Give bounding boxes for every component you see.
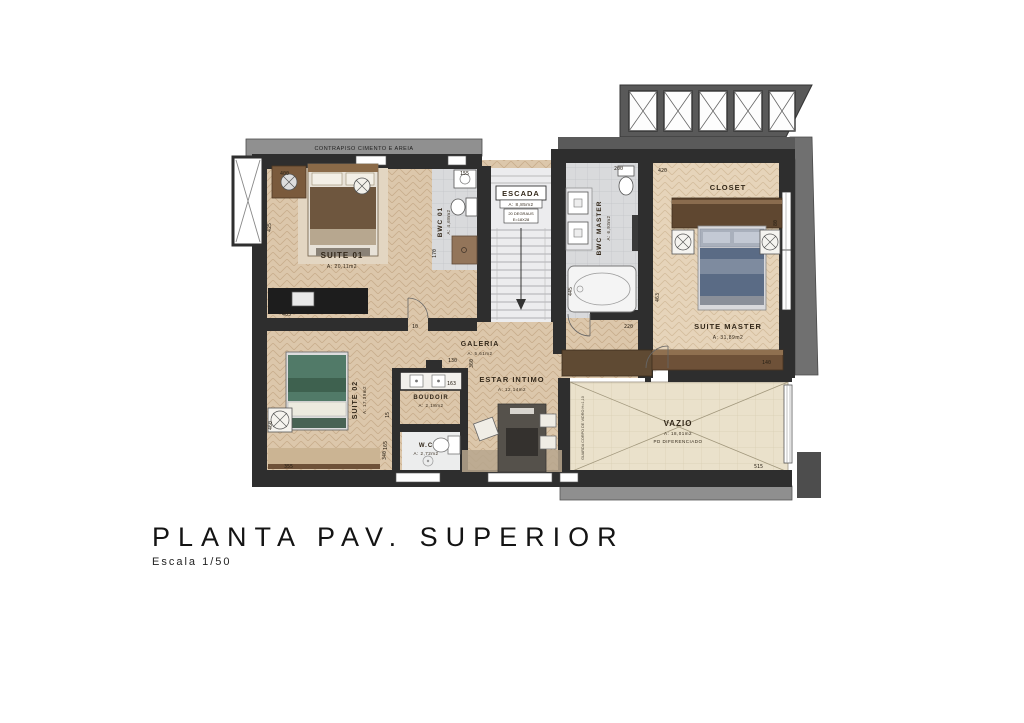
wc-toilet-tank: [448, 436, 460, 454]
stair-note-2: E=18X28: [513, 217, 530, 222]
room-label-boudoir: BOUDOIR: [413, 395, 448, 401]
estar-chair-1: [540, 414, 556, 427]
title-block: PLANTA PAV. SUPERIOR Escala 1/50: [152, 522, 625, 568]
dim-15: 15: [385, 412, 391, 418]
wc-toilet: [433, 438, 449, 452]
room-area-galeria: A: 5,61m2: [467, 351, 492, 356]
dim-400: 400: [280, 171, 289, 177]
suite01-bed: [308, 164, 378, 256]
room-area-boudoir: A: 2,18m2: [418, 403, 443, 408]
floorplan-page: SEVEN CONTRAPISO CIMENTO E AREIA: [0, 0, 1024, 723]
room-area-escada: A: 8,85m2: [508, 202, 533, 207]
suite02-bed: [286, 352, 348, 430]
bwc01-toilet: [451, 199, 465, 215]
room-area-vazio: A: 18,01m2: [664, 431, 692, 436]
guardrail-note: GUARDA CORPO DE VIDRO H=1,10: [581, 396, 585, 460]
bwc01-toilet-tank: [466, 198, 477, 216]
dim-220: 220: [624, 324, 633, 330]
dim-355: 355: [284, 464, 293, 470]
room-area-bwc01: A: 4,68m2: [446, 209, 451, 234]
plan-title: PLANTA PAV. SUPERIOR: [152, 522, 625, 553]
dim-155: 155: [460, 171, 469, 177]
bwc01-shower: [452, 236, 477, 264]
room-label-suite02: SUITE 02: [352, 381, 359, 419]
plan-scale: Escala 1/50: [152, 556, 625, 568]
bwc-master-shelf: [632, 215, 638, 251]
room-area-wc: A: 2,72m2: [413, 451, 438, 456]
room-label-suite-master: SUITE MASTER: [694, 322, 762, 331]
dim-515: 515: [754, 464, 763, 470]
pergola-skylight: [620, 85, 812, 137]
stair-note-1: 20 DEGRAUS: [508, 211, 534, 216]
dim-140: 140: [762, 360, 771, 366]
glass-guardrail: [784, 385, 792, 463]
room-label-bwc-master: BWC MASTER: [596, 201, 603, 256]
dim-460: 460: [268, 421, 274, 430]
dim-200: 200: [614, 166, 623, 172]
exterior-pillar: [797, 452, 821, 498]
dim-463: 463: [655, 293, 661, 302]
dim-170: 170: [432, 249, 438, 258]
hall-console: [562, 350, 652, 376]
contrapiso-label: CONTRAPISO CIMENTO E AREIA: [314, 146, 413, 152]
dim-360: 360: [469, 359, 475, 368]
dim-425: 425: [267, 223, 273, 232]
dim-420: 420: [658, 168, 667, 174]
room-area-estar: A: 12,14m2: [498, 387, 526, 392]
room-label-closet: CLOSET: [710, 183, 746, 192]
room-label-galeria: GALERIA: [461, 341, 500, 348]
room-area-suite02: A: 17,39m2: [362, 386, 367, 414]
dim-405: 405: [282, 312, 291, 318]
dim-10: 10: [412, 324, 418, 330]
bwc-master-toilet: [619, 177, 633, 195]
dim-445: 445: [568, 287, 574, 296]
estar-chair-2: [540, 436, 556, 449]
dim-130: 130: [448, 358, 457, 364]
room-area-suite01: A: 20,11m2: [327, 264, 357, 270]
dim-80: 80: [773, 220, 779, 226]
left-window-panel: [233, 157, 263, 245]
room-label-escada: ESCADA: [502, 189, 540, 198]
pergola-glass-panels: [629, 91, 795, 131]
suite01-desk: [268, 288, 368, 314]
dim-165: 165: [383, 441, 389, 450]
room-area-suite-master: A: 31,89m2: [713, 335, 744, 341]
room-label-wc: W.C: [419, 443, 433, 449]
dim-340: 340: [382, 451, 388, 460]
dim-163: 163: [447, 381, 456, 387]
room-area-bwc-master: A: 6,93m2: [606, 215, 611, 240]
room-label-suite01: SUITE 01: [321, 251, 364, 260]
room-note-vazio: PD DIFERENCIADO: [653, 439, 702, 444]
room-label-vazio: VAZIO: [664, 419, 693, 428]
floorplan-drawing: SEVEN CONTRAPISO CIMENTO E AREIA: [0, 0, 1024, 723]
suite-master-bed: [698, 226, 766, 310]
room-label-bwc01: BWC 01: [437, 207, 444, 238]
room-label-estar: ESTAR INTIMO: [479, 375, 544, 384]
